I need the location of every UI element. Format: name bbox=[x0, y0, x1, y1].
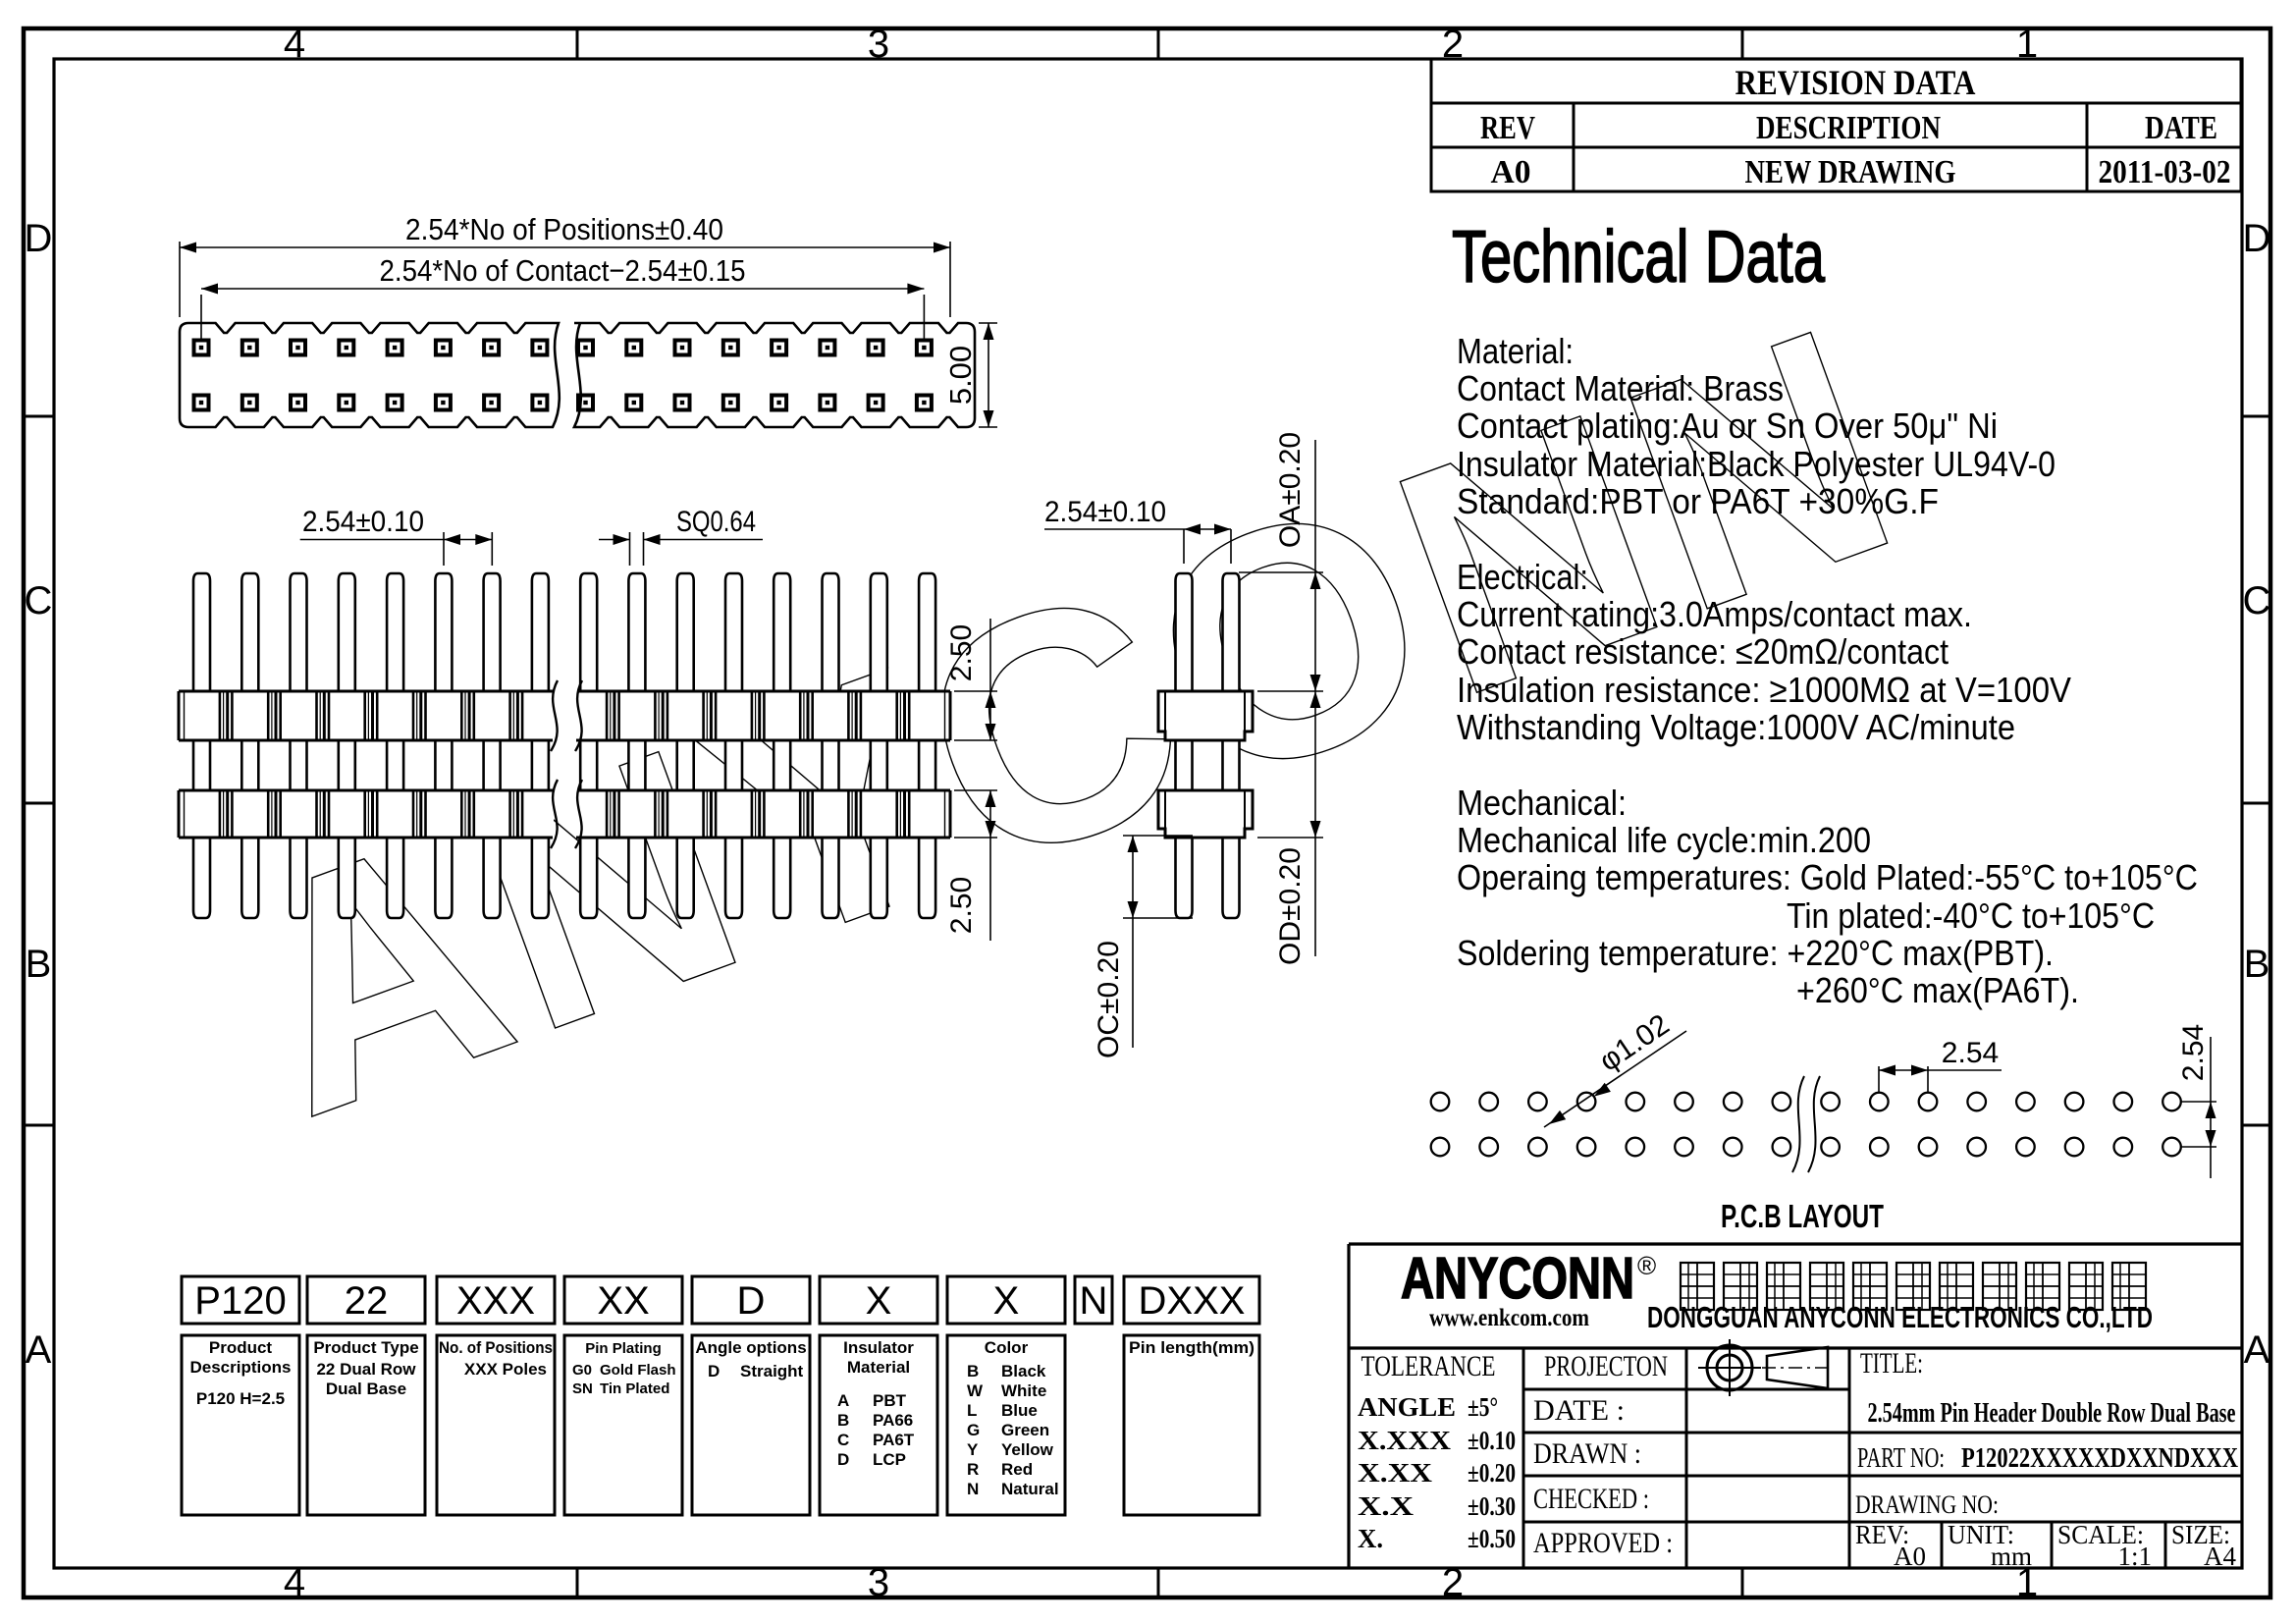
svg-text:LCP: LCP bbox=[873, 1450, 906, 1469]
svg-text:Product: Product bbox=[209, 1338, 273, 1357]
svg-text:B: B bbox=[2244, 943, 2270, 986]
svg-text:±5°: ±5° bbox=[1468, 1392, 1498, 1422]
svg-text:DATE: DATE bbox=[2145, 110, 2217, 146]
svg-text:Insulator Material:Black Polye: Insulator Material:Black Polyester UL94V… bbox=[1457, 444, 2056, 484]
svg-text:5.00: 5.00 bbox=[943, 346, 978, 405]
svg-text:B: B bbox=[837, 1411, 849, 1430]
svg-text:TITLE:: TITLE: bbox=[1860, 1347, 1923, 1380]
svg-text:No. of Positions: No. of Positions bbox=[439, 1338, 553, 1357]
svg-text:www.enkcom.com: www.enkcom.com bbox=[1429, 1305, 1589, 1331]
svg-text:A: A bbox=[26, 1328, 52, 1372]
svg-text:±0.30: ±0.30 bbox=[1468, 1491, 1516, 1521]
svg-text:+260°C max(PA6T).: +260°C max(PA6T). bbox=[1796, 970, 2079, 1010]
svg-text:P12022XXXXXDXXNDXXX: P12022XXXXXDXXNDXXX bbox=[1961, 1443, 2238, 1474]
svg-text:D: D bbox=[837, 1450, 849, 1469]
svg-text:OD±0.20: OD±0.20 bbox=[1274, 847, 1307, 965]
svg-text:Yellow: Yellow bbox=[1001, 1440, 1054, 1459]
svg-text:Insulation resistance: ≥1000MΩ: Insulation resistance: ≥1000MΩ at V=100V bbox=[1457, 670, 2071, 710]
svg-text:Contact Material: Brass: Contact Material: Brass bbox=[1457, 368, 1784, 408]
svg-text:Material:: Material: bbox=[1457, 331, 1574, 371]
svg-text:±0.20: ±0.20 bbox=[1468, 1458, 1516, 1488]
svg-text:Contact resistance: ≤20mΩ/cont: Contact resistance: ≤20mΩ/contact bbox=[1457, 631, 1949, 672]
svg-text:Current rating:3.0Amps/contact: Current rating:3.0Amps/contact max. bbox=[1457, 594, 1972, 634]
svg-text:OC±0.20: OC±0.20 bbox=[1093, 941, 1125, 1058]
svg-text:DATE :: DATE : bbox=[1533, 1394, 1625, 1427]
svg-text:C: C bbox=[25, 579, 53, 623]
svg-text:PBT: PBT bbox=[873, 1391, 907, 1410]
svg-text:Tin plated:-40°C to+105°C: Tin plated:-40°C to+105°C bbox=[1787, 895, 2155, 936]
svg-text:X.: X. bbox=[1358, 1524, 1383, 1553]
svg-text:2: 2 bbox=[1442, 1561, 1464, 1604]
svg-text:22: 22 bbox=[345, 1279, 389, 1323]
svg-text:Operaing temperatures: Gold Pl: Operaing temperatures: Gold Plated:-55°C… bbox=[1457, 857, 2198, 897]
svg-text:B: B bbox=[967, 1362, 979, 1380]
svg-text:φ1.02: φ1.02 bbox=[1593, 1008, 1675, 1078]
svg-text:Mechanical life cycle:min.200: Mechanical life cycle:min.200 bbox=[1457, 820, 1871, 860]
svg-text:DXXX: DXXX bbox=[1139, 1279, 1246, 1323]
svg-text:2.54: 2.54 bbox=[1942, 1037, 1999, 1069]
svg-text:A: A bbox=[2244, 1328, 2270, 1372]
svg-text:Red: Red bbox=[1001, 1460, 1033, 1479]
svg-text:Material: Material bbox=[847, 1358, 910, 1377]
svg-text:4: 4 bbox=[284, 23, 305, 66]
svg-text:PA6T: PA6T bbox=[873, 1431, 915, 1449]
svg-text:DRAWN :: DRAWN : bbox=[1533, 1437, 1641, 1470]
svg-text:R: R bbox=[967, 1460, 979, 1479]
svg-text:A0: A0 bbox=[1894, 1542, 1926, 1571]
svg-text:DRAWING NO:: DRAWING NO: bbox=[1855, 1490, 1999, 1519]
svg-text:Technical Data: Technical Data bbox=[1452, 215, 1825, 298]
svg-text:N: N bbox=[1080, 1279, 1108, 1323]
svg-text:Withstanding Voltage:1000V AC/: Withstanding Voltage:1000V AC/minute bbox=[1457, 707, 2015, 747]
svg-text:2.54: 2.54 bbox=[2177, 1024, 2210, 1081]
svg-text:Pin length(mm): Pin length(mm) bbox=[1129, 1338, 1255, 1357]
svg-text:Mechanical:: Mechanical: bbox=[1457, 783, 1627, 823]
svg-text:X.XX: X.XX bbox=[1358, 1458, 1433, 1488]
svg-text:mm: mm bbox=[1991, 1542, 2032, 1571]
svg-text:2.54±0.10: 2.54±0.10 bbox=[302, 506, 424, 538]
svg-text:Pin Plating: Pin Plating bbox=[585, 1340, 662, 1357]
svg-text:DESCRIPTION: DESCRIPTION bbox=[1756, 110, 1941, 146]
svg-text:G0: G0 bbox=[572, 1362, 592, 1379]
svg-text:Y: Y bbox=[967, 1440, 979, 1459]
svg-text:ANGLE: ANGLE bbox=[1358, 1392, 1456, 1422]
svg-text:Black: Black bbox=[1001, 1362, 1046, 1380]
svg-text:2.54*No of Contact−2.54±0.15: 2.54*No of Contact−2.54±0.15 bbox=[380, 253, 746, 288]
svg-text:±0.50: ±0.50 bbox=[1468, 1524, 1516, 1553]
svg-text:D: D bbox=[25, 217, 53, 260]
svg-text:2.54*No of Positions±0.40: 2.54*No of Positions±0.40 bbox=[405, 212, 723, 246]
svg-text:Blue: Blue bbox=[1001, 1401, 1038, 1420]
svg-text:REV: REV bbox=[1480, 110, 1535, 146]
svg-text:Tin Plated: Tin Plated bbox=[600, 1380, 669, 1397]
svg-text:Electrical:: Electrical: bbox=[1457, 557, 1588, 597]
svg-text:A: A bbox=[837, 1391, 849, 1410]
svg-text:Soldering temperature: +220°C: Soldering temperature: +220°C max(PBT). bbox=[1457, 933, 2054, 973]
svg-text:DONGGUAN ANYCONN ELECTRONICS: DONGGUAN ANYCONN ELECTRONICS CO.,LTD bbox=[1647, 1300, 2153, 1334]
svg-text:SQ0.64: SQ0.64 bbox=[676, 506, 756, 538]
svg-text:L: L bbox=[967, 1401, 977, 1420]
svg-text:2.54±0.10: 2.54±0.10 bbox=[1044, 496, 1166, 528]
svg-text:3: 3 bbox=[868, 1561, 889, 1604]
svg-text:®: ® bbox=[1637, 1251, 1656, 1280]
svg-text:Product Type: Product Type bbox=[313, 1338, 418, 1357]
svg-text:Dual Base: Dual Base bbox=[326, 1380, 406, 1398]
svg-text:2.50: 2.50 bbox=[945, 877, 978, 934]
svg-text:1:1: 1:1 bbox=[2117, 1542, 2152, 1571]
svg-text:Color: Color bbox=[985, 1338, 1029, 1357]
svg-text:A4: A4 bbox=[2204, 1542, 2236, 1571]
svg-text:Natural: Natural bbox=[1001, 1480, 1059, 1498]
svg-text:SN: SN bbox=[572, 1380, 593, 1397]
svg-text:C: C bbox=[2243, 579, 2271, 623]
svg-text:D: D bbox=[2243, 217, 2271, 260]
svg-text:Standard:PBT or PA6T +30%G.F: Standard:PBT or PA6T +30%G.F bbox=[1457, 481, 1939, 521]
svg-text:G: G bbox=[967, 1421, 980, 1439]
svg-text:±0.10: ±0.10 bbox=[1468, 1426, 1516, 1455]
svg-text:NEW DRAWING: NEW DRAWING bbox=[1745, 154, 1956, 190]
svg-text:A0: A0 bbox=[1491, 154, 1531, 190]
svg-text:3: 3 bbox=[868, 23, 889, 66]
svg-text:Descriptions: Descriptions bbox=[190, 1358, 292, 1377]
svg-text:Insulator: Insulator bbox=[843, 1338, 914, 1357]
svg-text:P.C.B LAYOUT: P.C.B LAYOUT bbox=[1721, 1198, 1884, 1234]
svg-text:4: 4 bbox=[284, 1561, 305, 1604]
svg-text:Straight: Straight bbox=[740, 1362, 804, 1380]
svg-text:W: W bbox=[967, 1381, 984, 1400]
svg-text:22 Dual Row: 22 Dual Row bbox=[316, 1360, 416, 1379]
svg-text:X: X bbox=[993, 1279, 1020, 1323]
svg-text:Green: Green bbox=[1001, 1421, 1049, 1439]
svg-text:XX: XX bbox=[597, 1279, 649, 1323]
svg-text:2.50: 2.50 bbox=[945, 624, 978, 681]
svg-text:P120: P120 bbox=[194, 1279, 286, 1323]
svg-text:D: D bbox=[708, 1362, 720, 1380]
svg-text:White: White bbox=[1001, 1381, 1046, 1400]
svg-text:Gold Flash: Gold Flash bbox=[600, 1362, 676, 1379]
svg-text:X.X: X.X bbox=[1358, 1491, 1415, 1521]
svg-text:C: C bbox=[837, 1431, 849, 1449]
svg-text:PROJECTON: PROJECTON bbox=[1544, 1350, 1668, 1382]
svg-text:X.XXX: X.XXX bbox=[1358, 1426, 1452, 1455]
svg-text:PA66: PA66 bbox=[873, 1411, 913, 1430]
svg-text:XXX Poles: XXX Poles bbox=[464, 1360, 547, 1379]
svg-text:PART NO:: PART NO: bbox=[1857, 1443, 1945, 1474]
svg-text:CHECKED :: CHECKED : bbox=[1533, 1483, 1649, 1515]
svg-text:2011-03-02: 2011-03-02 bbox=[2099, 154, 2231, 190]
svg-text:APPROVED :: APPROVED : bbox=[1533, 1527, 1673, 1559]
svg-text:TOLERANCE: TOLERANCE bbox=[1362, 1350, 1496, 1382]
svg-text:B: B bbox=[26, 943, 52, 986]
svg-text:2.54mm Pin Header Double Row D: 2.54mm Pin Header Double Row Dual Base bbox=[1868, 1398, 2236, 1429]
svg-text:XXX: XXX bbox=[456, 1279, 535, 1323]
svg-text:REVISION DATA: REVISION DATA bbox=[1735, 63, 1976, 102]
svg-text:P120 H=2.5: P120 H=2.5 bbox=[196, 1389, 285, 1408]
svg-text:Contact plating:Au or Sn Over: Contact plating:Au or Sn Over 50μ" Ni bbox=[1457, 406, 1998, 446]
svg-text:X: X bbox=[866, 1279, 892, 1323]
svg-text:N: N bbox=[967, 1480, 979, 1498]
svg-text:OA±0.20: OA±0.20 bbox=[1274, 432, 1307, 548]
svg-text:D: D bbox=[737, 1279, 766, 1323]
svg-text:ANYCONN: ANYCONN bbox=[1401, 1246, 1634, 1311]
svg-text:Angle options: Angle options bbox=[695, 1338, 806, 1357]
